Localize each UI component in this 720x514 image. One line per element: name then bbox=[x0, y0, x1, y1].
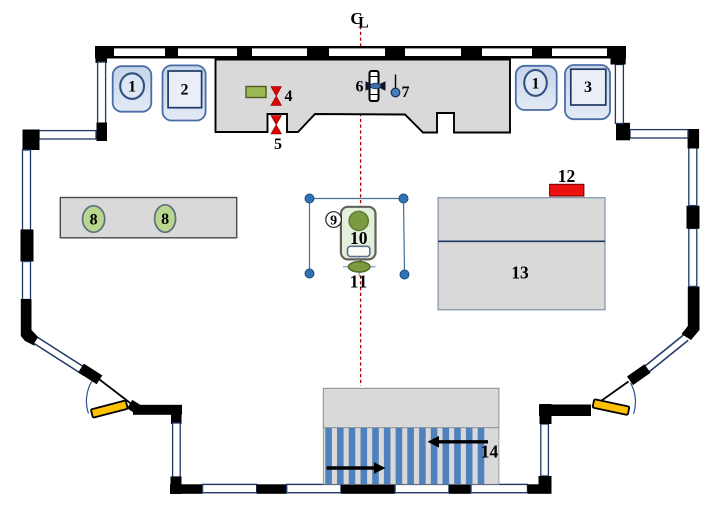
svg-text:7: 7 bbox=[402, 84, 410, 101]
svg-text:1: 1 bbox=[128, 79, 136, 96]
svg-text:1: 1 bbox=[532, 75, 540, 92]
svg-text:9: 9 bbox=[330, 214, 337, 229]
svg-text:2: 2 bbox=[181, 82, 189, 99]
svg-text:5: 5 bbox=[274, 136, 282, 153]
svg-text:3: 3 bbox=[584, 79, 592, 96]
svg-text:8: 8 bbox=[161, 211, 169, 228]
svg-text:11: 11 bbox=[350, 272, 369, 292]
svg-text:12: 12 bbox=[558, 166, 576, 186]
svg-text:4: 4 bbox=[285, 88, 293, 105]
svg-text:L: L bbox=[358, 15, 369, 32]
svg-text:8: 8 bbox=[90, 212, 98, 229]
svg-text:10: 10 bbox=[350, 228, 368, 248]
svg-text:14: 14 bbox=[481, 442, 499, 462]
svg-text:13: 13 bbox=[511, 263, 529, 283]
svg-text:6: 6 bbox=[356, 79, 364, 96]
